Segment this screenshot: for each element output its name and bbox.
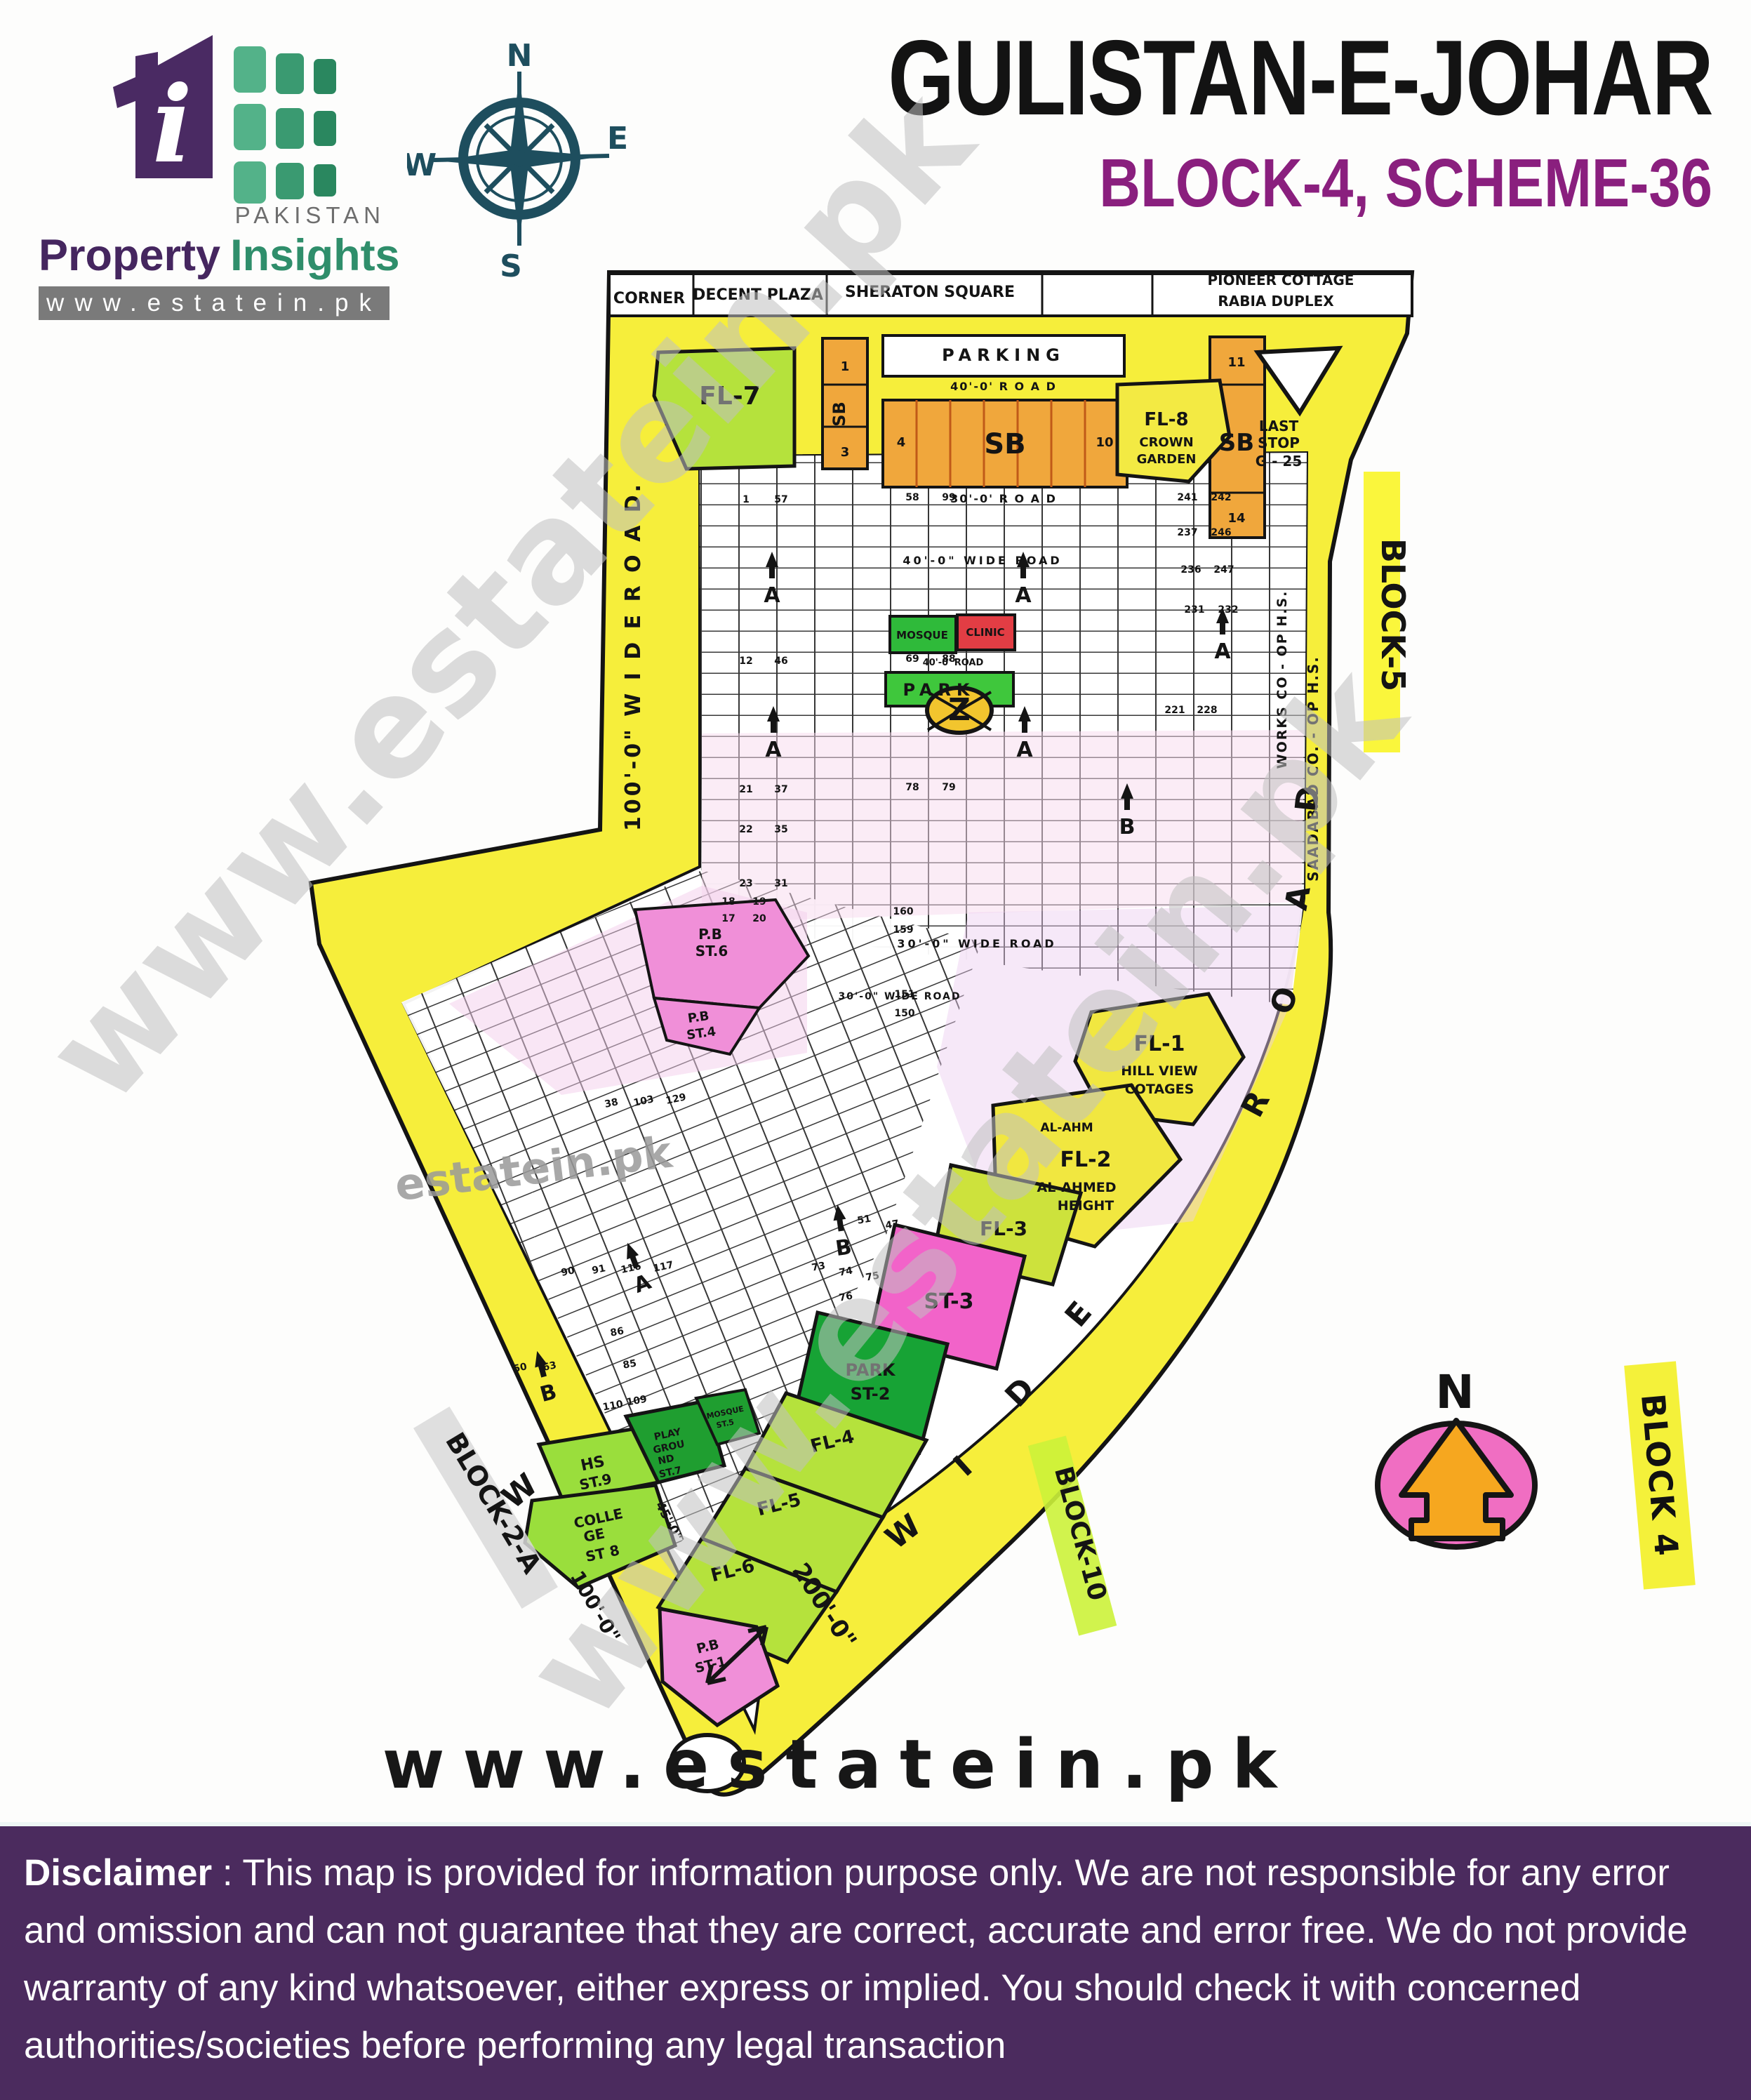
disclaimer-label: Disclaimer <box>24 1852 212 1894</box>
map-label: ST.6 <box>695 943 728 959</box>
plot-number: 57 <box>774 494 787 505</box>
plot-number: 58 <box>905 492 919 503</box>
disclaimer-bar: Disclaimer : This map is provided for in… <box>0 1822 1751 2100</box>
sector-letter: B <box>834 1235 853 1261</box>
map-label: CROWN <box>1139 435 1193 450</box>
page: i PAKISTAN PropertyInsights www.estatein… <box>0 0 1751 2100</box>
plot-number: 46 <box>774 656 787 667</box>
logo-i-glyph: i <box>152 63 192 187</box>
label-fl1: FL-1 <box>1134 1032 1185 1056</box>
brand-pakistan: PAKISTAN <box>39 202 390 229</box>
map-label: 30'-0' R O A D <box>950 492 1057 505</box>
brand-property: Property <box>39 231 220 280</box>
note-pioneer-cottage: PIONEER COTTAGE <box>1208 272 1354 288</box>
map-label: AL-AHMED <box>1037 1180 1117 1195</box>
label-block-5: BLOCK-5 <box>1374 538 1412 691</box>
map-label: 10 <box>1096 435 1113 450</box>
plot-number: 159 <box>893 924 913 936</box>
map-label: 14 <box>1227 511 1245 526</box>
label-sb: SB <box>984 428 1025 460</box>
compass-n: N <box>507 38 533 74</box>
wash-pink-mid <box>702 730 1304 923</box>
plot-number: 221 <box>1164 705 1185 716</box>
map-label: 40'-0' R O A D <box>950 380 1057 393</box>
map-label: STOP <box>1258 434 1300 451</box>
plot-number: 231 <box>1184 604 1204 616</box>
north-arrow-badge: N <box>1365 1369 1549 1558</box>
plot-number: 1 <box>743 494 750 505</box>
compass-rose-icon: N E S W <box>407 35 639 281</box>
plot-number: 37 <box>774 784 787 795</box>
plot-number: 17 <box>721 913 735 924</box>
plot-number: 160 <box>893 906 913 917</box>
block4-ribbon: BLOCK 4 <box>1624 1361 1696 1589</box>
sector-letter: A <box>765 738 782 762</box>
plot-number: 73 <box>811 1260 826 1273</box>
note-rabia-duplex: RABIA DUPLEX <box>1218 293 1334 310</box>
plot-number: 19 <box>752 896 766 908</box>
sector-letter: A <box>1015 583 1032 608</box>
map-label: COTAGES <box>1125 1082 1194 1097</box>
shop-sheraton-square: SHERATON SQUARE <box>845 284 1015 301</box>
map-label: ST-2 <box>851 1384 891 1404</box>
plot-number: 35 <box>774 824 787 835</box>
map-label: HILL VIEW <box>1121 1063 1198 1079</box>
label-park-st2: PARK <box>845 1360 896 1380</box>
label-mosque: MOSQUE <box>896 629 948 642</box>
shop-decent-plaza: DECENT PLAZA <box>693 286 823 304</box>
label-fl3: FL-3 <box>980 1217 1027 1240</box>
plot-number: 20 <box>752 913 766 924</box>
plot-number: 75 <box>865 1270 880 1283</box>
map-label: HEIGHT <box>1058 1198 1114 1214</box>
plot-number: 150 <box>894 1008 914 1019</box>
plot-number: 22 <box>739 824 752 835</box>
disclaimer-text: : This map is provided for information p… <box>24 1852 1688 2066</box>
label-clinic: CLINIC <box>966 626 1004 639</box>
map-label: 1 <box>841 359 850 374</box>
sector-letter: A <box>1016 738 1033 762</box>
label-works-coop: WORKS CO - OP H.S. <box>1274 590 1290 769</box>
brand-logo-art: i <box>53 15 375 205</box>
map-label: 40'-0" WIDE ROAD <box>903 554 1062 567</box>
sector-letter: A <box>1214 639 1231 664</box>
plot-number: 47 <box>884 1218 900 1231</box>
label-pb-st6: P.B <box>698 926 722 943</box>
map-label: G - 25 <box>1256 453 1302 470</box>
plot-number: 31 <box>774 878 787 889</box>
plot-number: 246 <box>1211 527 1231 538</box>
plot-number: 51 <box>856 1213 872 1226</box>
footer-website: www.estatein.pk <box>0 1725 1677 1804</box>
plot-number: 236 <box>1180 564 1201 576</box>
map-label: 11 <box>1227 355 1245 370</box>
map-label: 30'-0" WIDE ROAD <box>897 937 1056 950</box>
label-parking: PARKING <box>942 345 1065 365</box>
plot-number: 18 <box>721 896 735 908</box>
label-roundabout-z: Z <box>948 692 971 728</box>
map-label: 4 <box>897 435 906 450</box>
label-fl2: FL-2 <box>1060 1148 1112 1172</box>
page-title: GULISTAN-E-JOHAR <box>848 17 1712 140</box>
label-saadabad-coop: SAADABAD CO. - OP H.S. <box>1305 656 1321 882</box>
title-block: GULISTAN-E-JOHAR BLOCK-4, SCHEME-36 <box>632 17 1712 222</box>
sector-letter: B <box>1119 815 1136 839</box>
label-fl8: FL-8 <box>1144 409 1188 430</box>
label-fl7: FL-7 <box>699 382 761 411</box>
label-last-stop: LAST <box>1259 418 1299 434</box>
map-label: P.B <box>687 1009 710 1026</box>
map-label: SB <box>830 401 849 427</box>
plot-number: 86 <box>609 1325 625 1338</box>
label-st3: ST-3 <box>924 1289 974 1314</box>
compass-w: W <box>407 147 437 183</box>
map-label: SB <box>1219 429 1254 457</box>
plot-number: 242 <box>1211 492 1231 503</box>
plot-number: 79 <box>942 782 955 793</box>
page-subtitle: BLOCK-4, SCHEME-36 <box>804 144 1712 222</box>
plot-number: 69 <box>905 653 919 665</box>
plot-number: 241 <box>1177 492 1197 503</box>
plot-number: 23 <box>739 878 752 889</box>
shop-corner: CORNER <box>613 290 685 307</box>
plot-number: 85 <box>622 1357 637 1371</box>
map-label: AL-AHM <box>1040 1121 1093 1135</box>
plot-number: 78 <box>905 782 919 793</box>
compass-e: E <box>607 121 628 157</box>
plot-number: 76 <box>838 1290 853 1303</box>
plot-number: 247 <box>1213 564 1234 576</box>
plot-map: 1575899124669882137787922352331181917201… <box>267 251 1475 1811</box>
sector-letter: A <box>764 583 780 608</box>
logo-windows-icon <box>234 46 336 204</box>
map-label: 3 <box>841 445 850 460</box>
plot-number: 74 <box>838 1265 853 1278</box>
plot-number: 21 <box>739 784 752 795</box>
plot-number: 237 <box>1177 527 1197 538</box>
plot-number: 12 <box>739 656 752 667</box>
map-label: 40'-0' ROAD <box>923 658 984 668</box>
map-label: GARDEN <box>1137 452 1197 467</box>
label-left-road: 100'-0" W I D E R O A D. <box>621 481 646 831</box>
north-letter: N <box>1435 1369 1474 1419</box>
map-label: 30'-0" WIDE ROAD <box>839 991 961 1002</box>
plot-number: 228 <box>1197 705 1217 716</box>
